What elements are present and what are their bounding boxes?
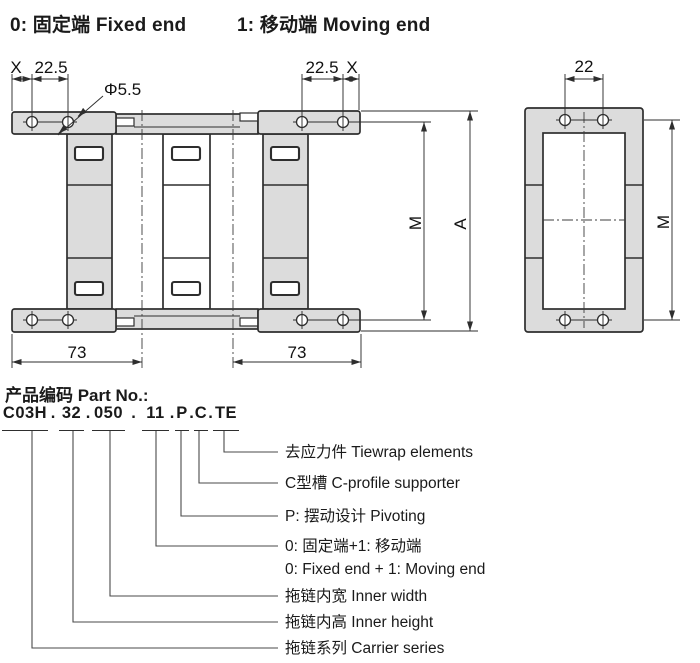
dim-22_5-right: 22.5 [305,58,338,77]
callout-ends: 0: 固定端+1: 移动端 0: Fixed end + 1: Moving e… [285,535,485,581]
callout-inner-width: 拖链内宽 Inner width [285,587,427,606]
dim-diameter: Φ5.5 [104,80,141,99]
part-separator: . [125,404,142,430]
part-segment-ends: 11 [142,404,169,431]
drawing-page: 0: 固定端 Fixed end 1: 移动端 Moving end [0,0,700,663]
dim-22_5-left: 22.5 [34,58,67,77]
part-no-heading: 产品编码 Part No.: [5,381,149,406]
part-segment-tiewrap: TE [213,404,239,431]
part-separator: . [84,404,92,430]
part-separator: . [47,404,59,430]
part-no-connectors [32,431,278,648]
part-segment-inner-width: 050 [92,404,125,431]
part-number: C03H . 32 . 050 . 11 . P . C . TE [0,404,260,432]
callout-tiewrap-elements: 去应力件 Tiewrap elements [285,443,473,462]
callout-ends-zh: 0: 固定端+1: 移动端 [285,535,485,558]
front-view [525,108,643,332]
dim-73-left: 73 [68,343,87,362]
part-segment-c-profile: C [194,404,208,431]
dim-73-right: 73 [288,343,307,362]
chain-link-plates [67,134,308,309]
callout-ends-en: 0: Fixed end + 1: Moving end [285,558,485,581]
dim-22: 22 [575,57,594,76]
part-segment-series: C03H [2,404,48,431]
callout-c-profile: C型槽 C-profile supporter [285,474,460,493]
part-segment-pivoting: P [175,404,189,431]
dim-a: A [451,218,470,230]
dim-x-left: X [10,58,21,77]
dim-x-right: X [346,58,357,77]
top-view [12,110,431,368]
callout-inner-height: 拖链内高 Inner height [285,613,433,632]
callout-carrier-series: 拖链系列 Carrier series [285,639,444,658]
part-segment-inner-height: 32 [59,404,84,431]
dim-m-top-view: M [406,216,425,230]
dim-m-front-view: M [654,215,673,229]
callout-pivoting: P: 摆动设计 Pivoting [285,507,425,526]
